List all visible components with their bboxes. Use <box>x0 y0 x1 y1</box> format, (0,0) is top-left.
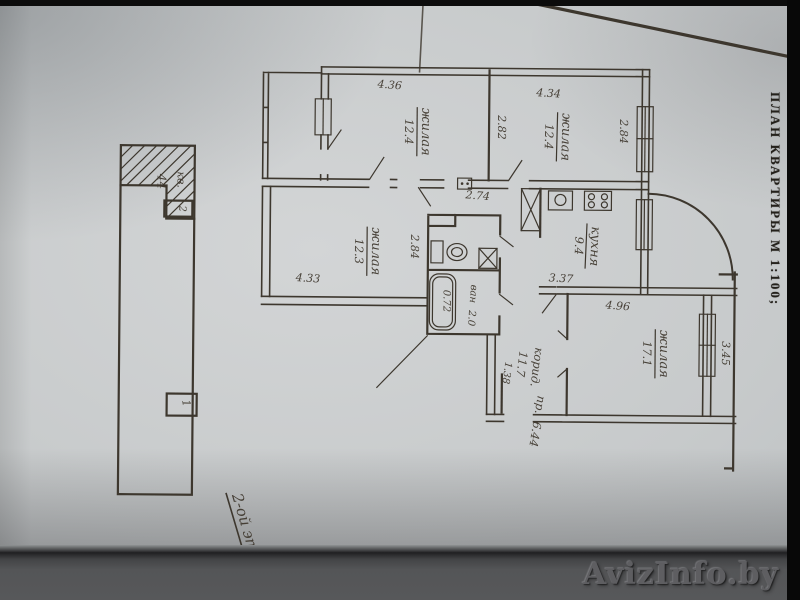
paper-sheet <box>0 6 787 545</box>
photo-of-floor-plan: жилая 12.4 жилая 12.4 жилая 12.3 кухня <box>0 0 800 600</box>
watermark: AvizInfo.by <box>583 557 779 592</box>
photo-edge-right <box>787 0 800 600</box>
table-surface: AvizInfo.by <box>0 545 787 600</box>
photo-edge-top <box>0 0 800 6</box>
side-caption: ПЛАН КВАРТИРЫ М 1:100; <box>766 92 783 350</box>
